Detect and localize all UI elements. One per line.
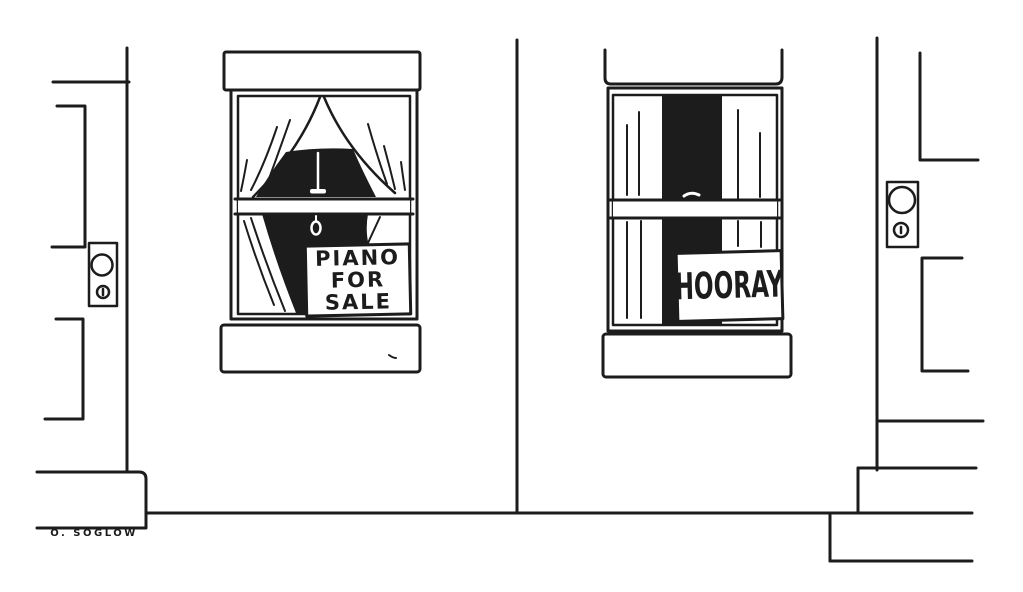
left-window-sill <box>221 325 420 372</box>
right-doorknob-plate <box>887 182 918 247</box>
cartoon-panel: PIANO FOR SALE HOORAY O. SOGLOW <box>0 0 1023 592</box>
left-doorknob-plate <box>89 243 117 306</box>
piano-sign-line3: SALE <box>325 290 393 313</box>
left-door <box>45 48 129 472</box>
hooray-sign-text: HOORAY <box>676 251 783 322</box>
curtain-fold <box>241 160 247 191</box>
left-stoop <box>37 472 146 528</box>
left-stoop-outline <box>37 472 146 528</box>
right-window-cornice <box>605 50 782 84</box>
hooray-sign-word: HOORAY <box>675 263 785 309</box>
curtain-fold <box>368 217 380 243</box>
left-doorknob <box>92 255 113 276</box>
right-door-lower-panel <box>922 258 968 371</box>
right-window <box>603 50 791 377</box>
right-door <box>877 38 978 470</box>
left-window-cornice-fill <box>224 52 420 90</box>
curtain-fold <box>401 162 405 190</box>
right-window-sill <box>603 334 791 377</box>
sill-mark <box>389 355 396 358</box>
right-door-upper-panel <box>920 53 978 160</box>
left-window-rail-fill <box>238 199 410 214</box>
line-art <box>0 0 1023 592</box>
left-window-upper-sash <box>241 97 405 197</box>
piano-sign-line1: PIANO <box>315 246 400 270</box>
left-door-upper-panel <box>52 106 85 247</box>
lamp-pull-handle <box>310 189 326 194</box>
left-window <box>221 52 420 372</box>
right-steps <box>830 421 983 561</box>
artist-signature-name: O. SOGLOW <box>50 528 138 539</box>
artist-signature: O. SOGLOW <box>46 525 142 541</box>
right-doorknob <box>889 187 915 213</box>
piano-sign-line2: FOR <box>331 268 386 291</box>
piano-for-sale-sign-text: PIANO FOR SALE <box>305 244 410 316</box>
right-window-rail-fill <box>613 200 777 218</box>
left-door-lower-panel <box>45 319 83 419</box>
